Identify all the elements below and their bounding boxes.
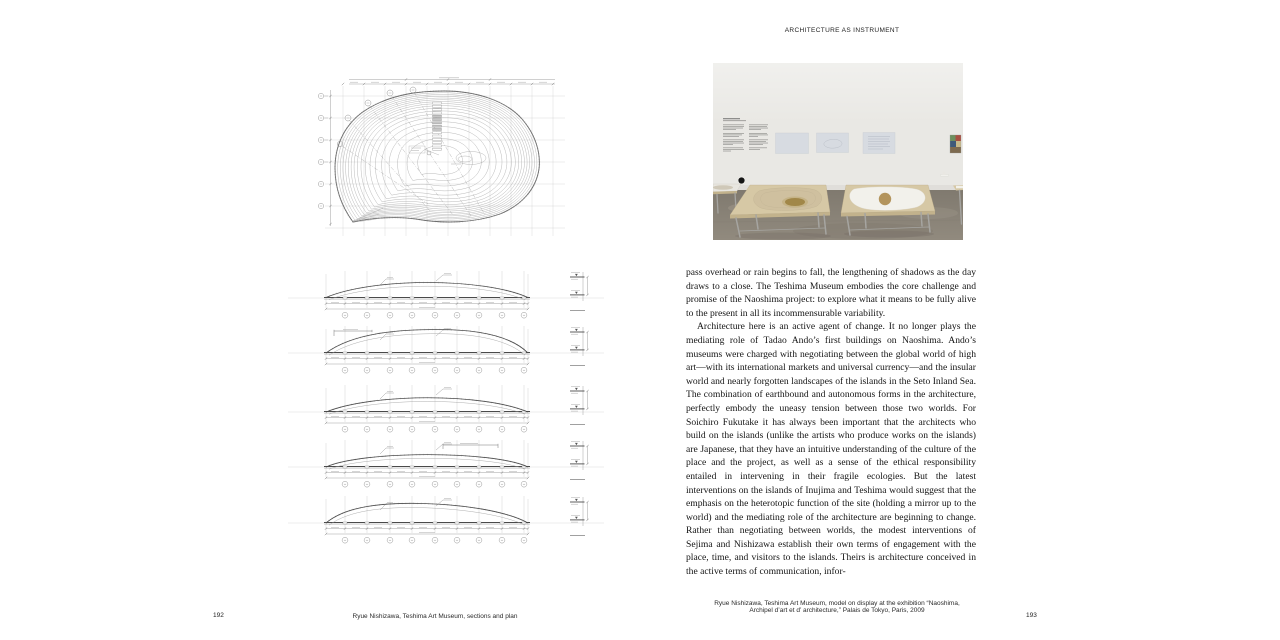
photo-caption-line-1: Ryue Nishizawa, Teshima Art Museum, mode… (687, 600, 987, 607)
plan-grid-bubbles-left (318, 93, 323, 208)
plan-top-dimensions (342, 78, 555, 85)
left-page-number: 192 (213, 612, 224, 619)
body-paragraph-1: pass overhead or rain begins to fall, th… (686, 266, 976, 320)
running-head: ARCHITECTURE AS INSTRUMENT (742, 27, 942, 34)
section-1 (288, 271, 604, 318)
body-text-column: pass overhead or rain begins to fall, th… (686, 266, 976, 579)
body-paragraph-2: Architecture here is an active agent of … (686, 320, 976, 578)
right-page-number: 193 (1026, 612, 1037, 619)
wall-black-dot (738, 177, 744, 183)
section-2 (288, 326, 604, 373)
plan-annotations (409, 146, 486, 165)
plan-drawing (313, 76, 578, 244)
section-5 (288, 496, 604, 543)
plan-level-ladder (433, 102, 442, 150)
framed-panel-3 (863, 133, 895, 154)
small-artwork (950, 135, 961, 153)
plan-left-dimensions (318, 90, 331, 226)
gallery-photo (713, 63, 963, 240)
left-figure-caption: Ryue Nishizawa, Teshima Art Museum, sect… (285, 613, 585, 620)
model-right-spot (879, 193, 891, 205)
photo-caption-line-2: Archipel d’art et d’ architecture,” Pala… (687, 607, 987, 614)
photo-caption: Ryue Nishizawa, Teshima Art Museum, mode… (687, 600, 987, 615)
framed-panel-1 (776, 133, 809, 154)
book-spread: 192 Ryue Nishizawa, Teshima Art Museum, … (0, 0, 1280, 640)
framed-panels (776, 133, 896, 154)
section-4 (288, 440, 604, 487)
model-left-spot (785, 198, 805, 206)
sections-drawing (288, 268, 628, 560)
plan-grid (325, 86, 565, 236)
section-3 (288, 385, 604, 432)
framed-panel-2 (817, 133, 849, 153)
plan-leader-bubbles (337, 87, 485, 216)
